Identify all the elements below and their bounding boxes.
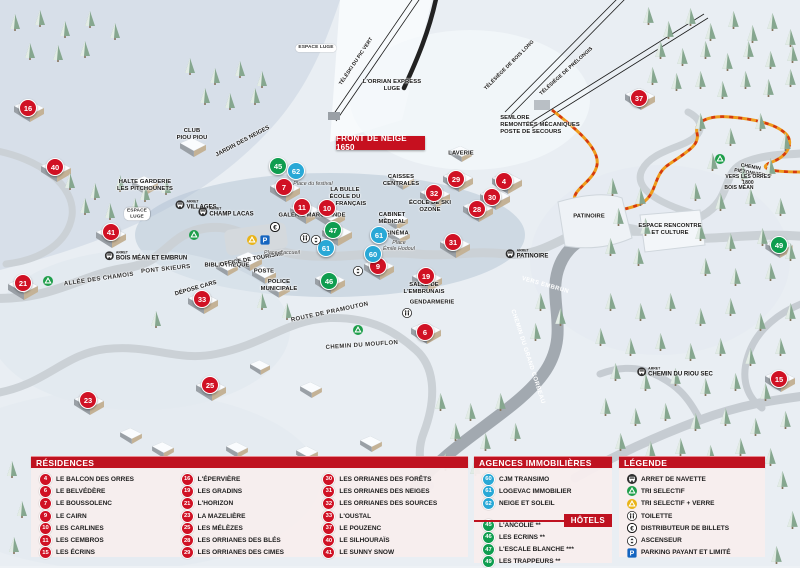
map-marker: 49	[770, 236, 788, 254]
map-label: CAISSES CENTRALES	[383, 174, 419, 188]
map-label: ESPACE LUGE	[124, 207, 150, 220]
map-marker: 33	[193, 290, 211, 308]
item-label: DISTRIBUTEUR DE BILLETS	[641, 525, 729, 532]
bus-stop-name: CHEMIN DU RIOU SEC	[648, 371, 713, 377]
item-label: L'HORIZON	[198, 500, 234, 507]
legend-item: 41LE SUNNY SNOW	[322, 547, 464, 559]
legend-item: € DISTRIBUTEUR DE BILLETS	[627, 522, 761, 534]
elevator-icon	[353, 266, 363, 276]
item-number-badge: 32	[322, 497, 335, 510]
item-number-badge: 10	[39, 522, 52, 535]
legend-item: 4LE BALCON DES ORRES	[39, 473, 181, 485]
legend-item: 19LES GRADINS	[181, 485, 323, 497]
bus-stop-name: PATINOIRE	[517, 253, 549, 259]
map-label: CINÉMA	[385, 231, 408, 238]
hotels-divider	[474, 520, 566, 522]
service-icon	[300, 230, 310, 240]
legend-item: 11LES CEMBROS	[39, 534, 181, 546]
map-label: HALTE GARDERIE LES PITCHOUNETS	[117, 179, 173, 193]
item-label: LOGEVAC IMMOBILIER	[499, 488, 571, 495]
item-label: ARRET DE NAVETTE	[641, 476, 706, 483]
legend-item: 32LES ORRIANES DES SOURCES	[322, 498, 464, 510]
service-icon	[353, 322, 363, 332]
map-label: Place Émile Hodoul	[383, 240, 415, 252]
legend-item: 16L'ÉPERVIÈRE	[181, 473, 323, 485]
item-number-badge: 49	[482, 555, 495, 568]
legend-item: 49LES TRAPPEURS **	[482, 556, 608, 568]
panel-hotels-title: HÔTELS	[564, 514, 612, 527]
item-label: L'ANCOLIE **	[499, 522, 541, 529]
item-number-badge: 15	[39, 546, 52, 559]
map-marker: 28	[468, 200, 486, 218]
map-label: BOIS MÉAN	[724, 186, 753, 192]
item-number-badge: 62	[482, 497, 495, 510]
toilet-icon	[402, 308, 412, 318]
item-number-badge: 6	[39, 485, 52, 498]
recycle-icon	[627, 486, 637, 496]
legend-item: TRI SELECTIF	[627, 485, 761, 497]
item-label: LE BALCON DES ORRES	[56, 476, 134, 483]
legend-icon: P	[627, 548, 637, 558]
item-number-badge: 46	[482, 531, 495, 544]
legend-item: 46LES ECRINS **	[482, 531, 608, 543]
legend-item: 60CJM TRANSIMO	[482, 473, 608, 485]
panel-agences: AGENCES IMMOBILIÈRES 60CJM TRANSIMO61LOG…	[474, 456, 612, 563]
map-label: POSTE	[254, 269, 274, 276]
bus-icon	[105, 252, 114, 261]
map-marker: 11	[293, 198, 311, 216]
item-label: LA MAZELIÈRE	[198, 513, 246, 520]
legend-icon	[627, 536, 637, 546]
legend-item: 10LES CARLINES	[39, 522, 181, 534]
map-marker: 41	[102, 223, 120, 241]
map-marker: 40	[46, 158, 64, 176]
item-number-badge: 9	[39, 510, 52, 523]
atm-euro-icon: €	[270, 222, 280, 232]
map-marker: 10	[318, 199, 336, 217]
service-icon	[189, 227, 199, 237]
elevator-icon	[311, 235, 321, 245]
legend-item: 25LES MÉLÈZES	[181, 522, 323, 534]
bus-icon	[198, 208, 207, 217]
map-marker: 15	[770, 370, 788, 388]
item-number-badge: 11	[39, 534, 52, 547]
item-label: L'ESCALE BLANCHE ***	[499, 546, 574, 553]
service-icon	[353, 263, 363, 273]
item-number-badge: 30	[322, 473, 335, 486]
item-label: PARKING PAYANT ET LIMITÉ	[641, 549, 731, 556]
item-label: LE POUZENC	[339, 525, 381, 532]
parking-icon: P	[627, 548, 637, 558]
map-marker: 30	[483, 188, 501, 206]
map-label: ESPACE LUGE	[295, 44, 336, 52]
item-label: LE BOUSSOLENC	[56, 500, 112, 507]
item-label: LES GRADINS	[198, 488, 242, 495]
map-marker: 21	[14, 274, 32, 292]
bus-stop-name: CHAMP LACAS	[209, 211, 253, 217]
item-number-badge: 33	[322, 510, 335, 523]
map-label: GENDARMERIE	[410, 300, 455, 307]
map-marker: 61	[370, 226, 388, 244]
item-label: LES ECRINS **	[499, 534, 545, 541]
map-label: L'ORRIAN EXPRESS LUGE	[363, 79, 421, 93]
bus-stop: ARRETBOIS MÉAN ET EMBRUN	[105, 251, 187, 261]
item-label: LES MÉLÈZES	[198, 525, 243, 532]
service-icon	[43, 273, 53, 283]
legend-item: 33L'OUSTAL	[322, 510, 464, 522]
item-number-badge: 16	[181, 473, 194, 486]
map-label: PATINOIRE	[573, 214, 605, 221]
legend-item: ARRET DE NAVETTE	[627, 473, 761, 485]
item-label: LES CARLINES	[56, 525, 104, 532]
map-marker: 46	[320, 272, 338, 290]
map-label: Place d'accueil	[264, 250, 300, 256]
item-label: ASCENSEUR	[641, 537, 682, 544]
item-label: LES ORRIANES DES BLÉS	[198, 537, 281, 544]
map-marker: 47	[324, 221, 342, 239]
map-label: SEMLORE REMONTÉES MÉCANIQUES POSTE DE SE…	[500, 115, 580, 135]
legend-icon	[627, 499, 637, 509]
map-label: CABINET MÉDICAL	[378, 212, 405, 226]
item-number-badge: 29	[181, 546, 194, 559]
front-de-neige-banner: FRONT DE NEIGE 1650	[336, 136, 425, 150]
residences-column-2: 16L'ÉPERVIÈRE19LES GRADINS21L'HORIZON23L…	[181, 473, 323, 553]
item-label: LES ÉCRINS	[56, 549, 95, 556]
item-number-badge: 61	[482, 485, 495, 498]
legend-icon	[627, 474, 637, 484]
item-number-badge: 23	[181, 510, 194, 523]
bus-stop: ARRETCHAMP LACAS	[198, 207, 253, 217]
recycle-icon	[189, 230, 199, 240]
recycle-glass-icon	[247, 235, 257, 245]
legend-item: 28LES ORRIANES DES BLÉS	[181, 534, 323, 546]
svg-text:€: €	[273, 224, 277, 231]
bus-icon	[627, 474, 637, 484]
map-marker: 16	[19, 99, 37, 117]
item-label: TOILETTE	[641, 513, 672, 520]
map-label: GALERIE MARCHANDE	[278, 213, 345, 220]
item-number-badge: 41	[322, 546, 335, 559]
service-icon	[715, 151, 725, 161]
map-marker: 32	[425, 184, 443, 202]
recycle-icon	[715, 154, 725, 164]
legend-item: 62NEIGE ET SOLEIL	[482, 498, 608, 510]
legend-item: 40LE SILHOURAÏS	[322, 534, 464, 546]
item-number-badge: 60	[482, 473, 495, 486]
map-marker: 4	[495, 172, 513, 190]
item-label: LES CEMBROS	[56, 537, 104, 544]
legend-item: 15LES ÉCRINS	[39, 547, 181, 559]
recycle-icon	[43, 276, 53, 286]
item-number-badge: 28	[181, 534, 194, 547]
map-marker: 6	[416, 323, 434, 341]
legend-item: TRI SELECTIF + VERRE	[627, 498, 761, 510]
map-marker: 45	[269, 157, 287, 175]
service-icon	[311, 232, 321, 242]
item-label: L'ÉPERVIÈRE	[198, 476, 241, 483]
service-icon	[402, 305, 412, 315]
map-marker: 25	[201, 376, 219, 394]
resort-map: FRONT DE NEIGE 1650 16 40 41 21 33 23 25…	[0, 0, 800, 566]
item-number-badge: 47	[482, 543, 495, 556]
map-label: LAVERIE	[448, 151, 473, 158]
legend-item: 23LA MAZELIÈRE	[181, 510, 323, 522]
legend-item: 30LES ORRIANES DES FORÊTS	[322, 473, 464, 485]
panel-agences-title: AGENCES IMMOBILIÈRES	[474, 456, 612, 468]
elevator-icon	[627, 536, 637, 546]
item-label: TRI SELECTIF	[641, 488, 685, 495]
legend-item: 47L'ESCALE BLANCHE ***	[482, 543, 608, 555]
legend-item: P PARKING PAYANT ET LIMITÉ	[627, 547, 761, 559]
legende-list: ARRET DE NAVETTE TRI SELEC	[627, 473, 761, 559]
item-number-badge: 25	[181, 522, 194, 535]
panel-legende-title: LÉGENDE	[619, 456, 765, 468]
item-number-badge: 37	[322, 522, 335, 535]
toilet-icon	[627, 511, 637, 521]
map-label: POLICE MUNICIPALE	[261, 279, 298, 293]
map-marker: 62	[287, 162, 305, 180]
atm-euro-icon: €	[627, 523, 637, 533]
item-label: TRI SELECTIF + VERRE	[641, 500, 715, 507]
bus-stop-name: BOIS MÉAN ET EMBRUN	[116, 255, 187, 261]
residences-column-1: 4LE BALCON DES ORRES6LE BELVÉDÈRE7LE BOU…	[39, 473, 181, 553]
map-marker: 37	[630, 89, 648, 107]
item-label: CJM TRANSIMO	[499, 476, 549, 483]
legend-item: TOILETTE	[627, 510, 761, 522]
item-label: LES ORRIANES DES NEIGES	[339, 488, 429, 495]
legend-item: 9LE CAIRN	[39, 510, 181, 522]
service-icon	[247, 232, 257, 242]
item-label: LE SUNNY SNOW	[339, 549, 394, 556]
item-label: L'OUSTAL	[339, 513, 371, 520]
bus-icon	[175, 201, 184, 210]
legend-item: 31LES ORRIANES DES NEIGES	[322, 485, 464, 497]
map-label: CLUB PIOU PIOU	[177, 128, 208, 142]
service-icon: P	[260, 232, 270, 242]
toilet-icon	[300, 233, 310, 243]
panel-legende: LÉGENDE ARRET DE N	[619, 456, 765, 557]
map-marker: 7	[275, 178, 293, 196]
item-label: LE CAIRN	[56, 513, 87, 520]
recycle-icon	[353, 325, 363, 335]
svg-text:P: P	[263, 238, 268, 245]
bus-stop: ARRETPATINOIRE	[506, 249, 549, 259]
item-label: LES ORRIANES DES FORÊTS	[339, 476, 431, 483]
bus-stop: ARRETCHEMIN DU RIOU SEC	[637, 367, 713, 377]
item-number-badge: 40	[322, 534, 335, 547]
residences-column-3: 30LES ORRIANES DES FORÊTS31LES ORRIANES …	[322, 473, 464, 553]
svg-text:P: P	[630, 551, 635, 558]
legend-item: ASCENSEUR	[627, 534, 761, 546]
svg-text:€: €	[630, 526, 634, 533]
legend-item: 61LOGEVAC IMMOBILIER	[482, 485, 608, 497]
legend-icon	[627, 511, 637, 521]
item-label: LE SILHOURAÏS	[339, 537, 389, 544]
legend-item: 7LE BOUSSOLENC	[39, 498, 181, 510]
item-label: LE BELVÉDÈRE	[56, 488, 105, 495]
panel-residences: RÉSIDENCES 4LE BALCON DES ORRES6LE BELVÉ…	[31, 456, 468, 557]
map-marker: 23	[79, 391, 97, 409]
agences-list: 60CJM TRANSIMO61LOGEVAC IMMOBILIER62NEIG…	[482, 473, 608, 510]
legend-item: 29LES ORRIANES DES CIMES	[181, 547, 323, 559]
item-number-badge: 7	[39, 497, 52, 510]
legend-item: 37LE POUZENC	[322, 522, 464, 534]
item-label: LES ORRIANES DES CIMES	[198, 549, 284, 556]
legend-item: 6LE BELVÉDÈRE	[39, 485, 181, 497]
item-label: LES ORRIANES DES SOURCES	[339, 500, 437, 507]
map-label: ÉCOLE DE SKI OZONE	[409, 200, 451, 214]
bus-icon	[637, 368, 646, 377]
map-label: Place du festival	[293, 181, 332, 187]
map-marker: 29	[447, 170, 465, 188]
item-label: NEIGE ET SOLEIL	[499, 500, 555, 507]
map-label: ESPACE RENCONTRE ET CULTURE	[638, 223, 701, 237]
item-number-badge: 19	[181, 485, 194, 498]
item-number-badge: 21	[181, 497, 194, 510]
parking-icon: P	[260, 235, 270, 245]
map-marker: 60	[364, 245, 382, 263]
service-icon: €	[270, 219, 280, 229]
recycle-glass-icon	[627, 499, 637, 509]
legend-icon	[627, 486, 637, 496]
item-number-badge: 4	[39, 473, 52, 486]
legend-icon: €	[627, 523, 637, 533]
legend-item: 21L'HORIZON	[181, 498, 323, 510]
item-label: LES TRAPPEURS **	[499, 558, 560, 565]
item-number-badge: 31	[322, 485, 335, 498]
map-marker: 31	[444, 233, 462, 251]
bus-icon	[506, 250, 515, 259]
map-marker: 19	[417, 267, 435, 285]
panel-residences-title: RÉSIDENCES	[31, 456, 468, 468]
